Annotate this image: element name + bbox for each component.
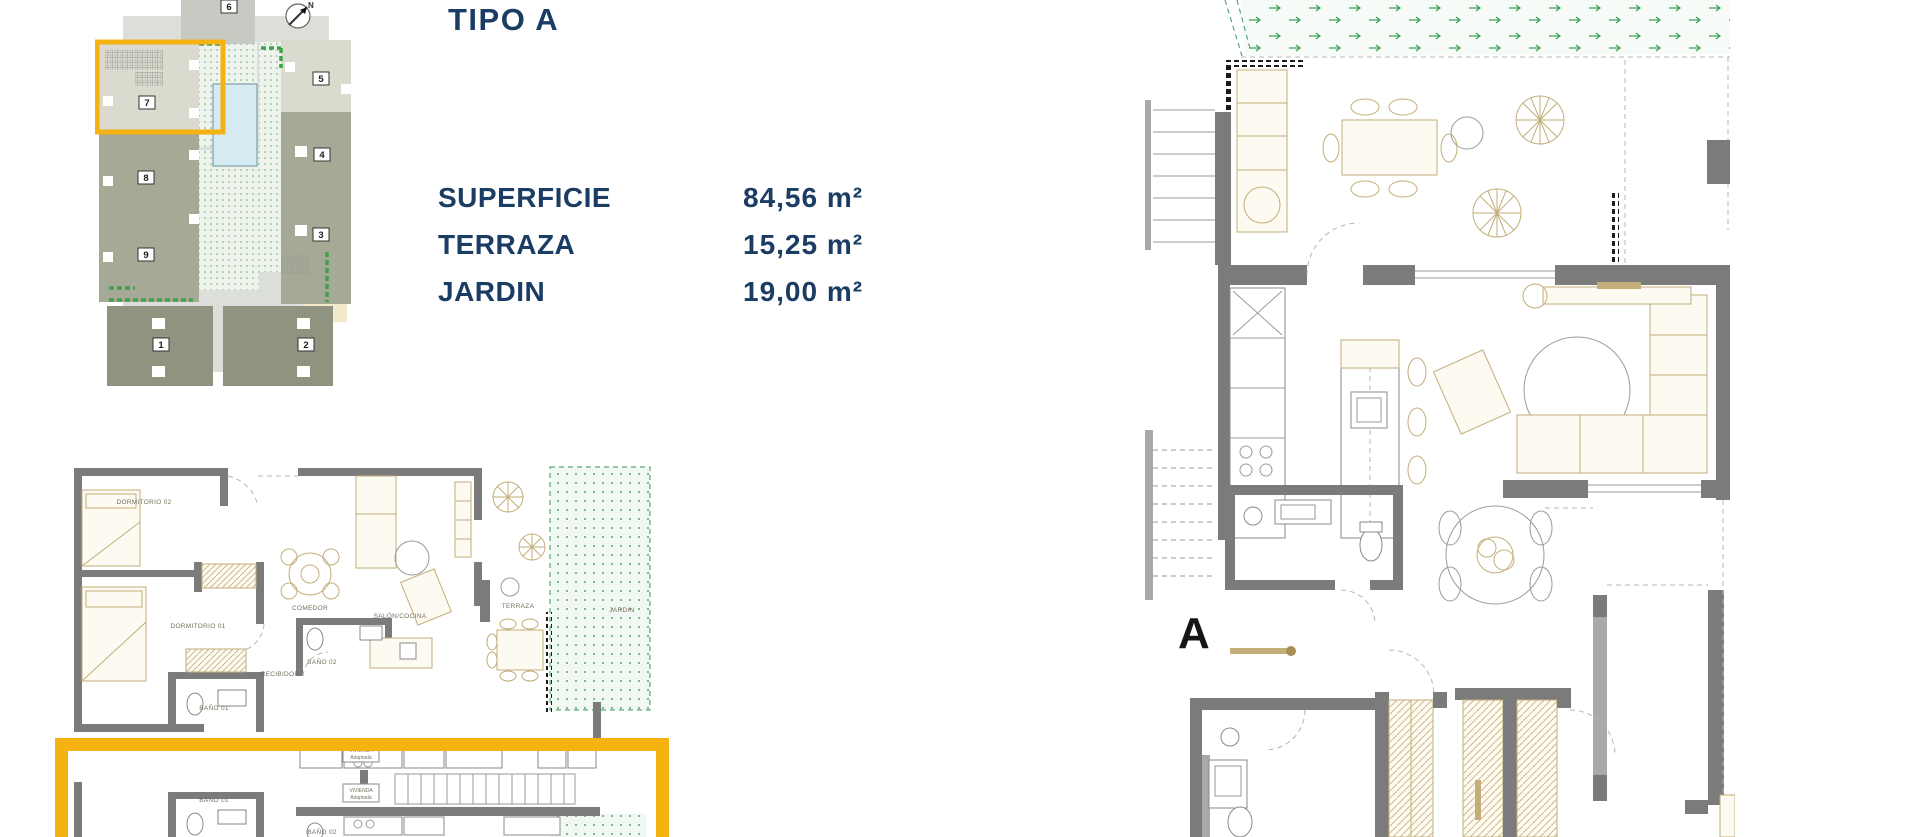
door-handle-tip [1286,646,1296,656]
svg-text:5: 5 [318,74,324,85]
building-tag-4: 4 [314,148,330,161]
pool [213,84,257,166]
spec-value: 15,25 m² [743,229,863,261]
garden-strip [1225,0,1730,230]
room-label-jardin: JARDIN [609,607,634,614]
room-label-comedor: COMEDOR [292,605,328,612]
svg-text:9: 9 [143,250,148,261]
spec-row-terraza: TERRAZA 15,25 m² [438,221,888,268]
building-tag-3: 3 [313,228,329,241]
tree [493,482,523,512]
door-handle [1230,648,1288,654]
svg-text:N: N [308,1,314,10]
floor-plan-detail: A [1145,0,1735,837]
building-tag-8: 8 [138,171,154,184]
spec-row-jardin: JARDIN 19,00 m² [438,268,888,315]
spec-label: JARDIN [438,276,743,308]
svg-text:7: 7 [144,98,149,109]
room-label-bano-01: BAÑO 01 [199,703,229,712]
tree [1473,189,1521,237]
building-tag-9: 9 [138,248,154,261]
room-label-recibidor: RECIBIDOR [261,671,300,678]
building-tag-1: 1 [153,338,169,351]
lower-rooms [1190,650,1735,837]
room-label-bano-02: BAÑO 02 [307,657,337,666]
spec-label: SUPERFICIE [438,182,743,214]
spec-row-superficie: SUPERFICIE 84,56 m² [438,174,888,221]
terrace [1237,60,1730,265]
tree [1516,96,1564,144]
room-label-salon-cocina: SALÓN/COCINA [374,611,427,620]
building-tag-7: 7 [139,96,155,109]
building-tag-2: 2 [298,338,314,351]
spec-value: 84,56 m² [743,182,863,214]
spec-value: 19,00 m² [743,276,863,308]
svg-text:3: 3 [318,230,323,241]
svg-text:1: 1 [158,340,164,351]
spec-label: TERRAZA [438,229,743,261]
building-tag-5: 5 [313,72,329,85]
brochure-page: 6 7 8 9 5 [0,0,1920,837]
room-label-terraza: TERRAZA [502,603,535,610]
patio-table [1439,506,1708,604]
stairs [1145,100,1215,600]
building-tag-6: 6 [221,0,237,13]
svg-text:8: 8 [143,173,148,184]
page-title: TIPO A [448,2,559,38]
site-plan: 6 7 8 9 5 [95,0,355,395]
specs-table: SUPERFICIE 84,56 m² TERRAZA 15,25 m² JAR… [438,174,888,315]
room-label-dormitorio-02: DORMITORIO 02 [116,499,171,506]
room-label-dormitorio-01: DORMITORIO 01 [170,623,225,630]
svg-text:2: 2 [303,340,308,351]
svg-text:4: 4 [319,150,325,161]
tree [519,534,545,560]
unit-letter-label: A [1178,609,1210,658]
floor-plan-highlight-box [55,738,669,837]
svg-text:6: 6 [226,2,231,13]
